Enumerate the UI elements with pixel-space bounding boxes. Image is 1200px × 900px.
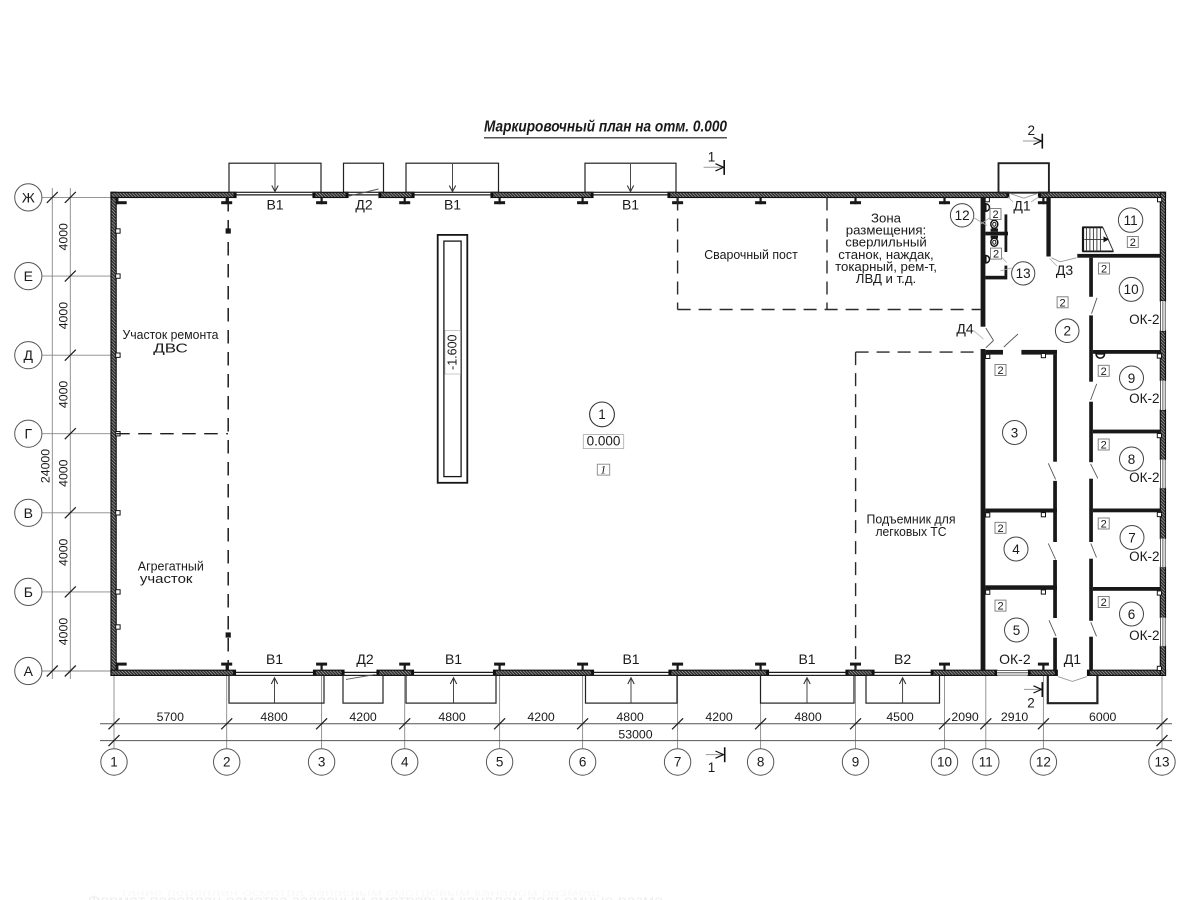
svg-text:8: 8 — [1128, 452, 1136, 467]
svg-text:В1: В1 — [798, 651, 815, 667]
svg-text:2: 2 — [1028, 123, 1036, 138]
svg-text:Ж: Ж — [22, 189, 35, 205]
svg-text:В1: В1 — [266, 197, 283, 213]
svg-text:8: 8 — [757, 754, 765, 769]
svg-text:2: 2 — [1101, 366, 1107, 378]
svg-text:4: 4 — [401, 754, 409, 769]
svg-text:ОК-2: ОК-2 — [1129, 470, 1159, 485]
svg-text:4800: 4800 — [616, 710, 644, 724]
svg-text:2090: 2090 — [951, 710, 979, 724]
svg-text:Маркировочный план на отм. 0.0: Маркировочный план на отм. 0.000 — [484, 119, 727, 136]
svg-text:9: 9 — [1128, 371, 1136, 386]
svg-text:5: 5 — [496, 754, 504, 769]
svg-text:2: 2 — [997, 601, 1003, 613]
svg-text:2910: 2910 — [1001, 710, 1029, 724]
svg-text:53000: 53000 — [618, 727, 652, 741]
svg-text:2: 2 — [1063, 324, 1071, 339]
svg-text:тание переплан осмотра запасны: тание переплан осмотра запасным смотровы… — [120, 888, 600, 899]
svg-text:2: 2 — [1101, 440, 1107, 452]
svg-text:Г: Г — [25, 426, 33, 442]
svg-text:4000: 4000 — [57, 302, 71, 330]
svg-text:6: 6 — [1128, 607, 1136, 622]
svg-text:7: 7 — [674, 754, 682, 769]
svg-text:2: 2 — [1027, 696, 1035, 711]
svg-text:3: 3 — [318, 754, 326, 769]
svg-text:ОК-2: ОК-2 — [1129, 391, 1159, 406]
svg-text:участок: участок — [140, 571, 193, 586]
svg-text:7: 7 — [1128, 530, 1136, 545]
svg-text:Е: Е — [24, 268, 33, 284]
svg-text:В1: В1 — [622, 651, 639, 667]
svg-text:4200: 4200 — [705, 710, 733, 724]
svg-text:Д2: Д2 — [356, 651, 373, 667]
svg-text:В2: В2 — [894, 651, 911, 667]
svg-text:6: 6 — [579, 754, 587, 769]
svg-text:2: 2 — [993, 249, 999, 261]
svg-text:13: 13 — [1016, 266, 1031, 281]
svg-text:4200: 4200 — [349, 710, 377, 724]
svg-text:Д1: Д1 — [1013, 198, 1030, 214]
svg-text:11: 11 — [1124, 213, 1138, 228]
svg-text:4500: 4500 — [886, 710, 914, 724]
svg-text:11: 11 — [979, 754, 993, 769]
svg-text:В1: В1 — [445, 651, 462, 667]
svg-text:1: 1 — [598, 407, 606, 422]
svg-text:4000: 4000 — [57, 381, 71, 409]
svg-text:10: 10 — [1124, 282, 1139, 297]
svg-text:легковых ТС: легковых ТС — [876, 524, 947, 539]
svg-text:В1: В1 — [622, 197, 639, 213]
svg-text:5700: 5700 — [157, 710, 185, 724]
svg-text:В1: В1 — [444, 197, 461, 213]
svg-text:1: 1 — [110, 754, 118, 769]
svg-text:2: 2 — [1130, 237, 1136, 249]
svg-text:4000: 4000 — [57, 538, 71, 566]
svg-text:ДВС: ДВС — [153, 341, 188, 356]
svg-text:10: 10 — [937, 754, 952, 769]
svg-text:5: 5 — [1013, 623, 1021, 638]
svg-text:4800: 4800 — [794, 710, 822, 724]
svg-text:2: 2 — [1101, 264, 1107, 276]
svg-text:1: 1 — [708, 150, 716, 165]
svg-text:ОК-2: ОК-2 — [1129, 312, 1159, 327]
svg-text:ОК-2: ОК-2 — [1129, 549, 1159, 564]
svg-text:4: 4 — [1012, 542, 1020, 557]
svg-text:ОК-2: ОК-2 — [1129, 628, 1159, 643]
svg-text:2: 2 — [1101, 597, 1107, 609]
svg-text:Д1: Д1 — [1064, 651, 1081, 667]
svg-text:4000: 4000 — [57, 223, 71, 251]
svg-text:Д4: Д4 — [956, 321, 973, 337]
svg-text:2: 2 — [1060, 297, 1066, 309]
svg-text:Б: Б — [24, 584, 33, 600]
svg-text:ЛВД и т.д.: ЛВД и т.д. — [856, 271, 916, 286]
svg-text:6000: 6000 — [1089, 710, 1117, 724]
svg-text:1: 1 — [708, 760, 716, 775]
svg-text:В: В — [24, 505, 33, 521]
svg-text:ОК-2: ОК-2 — [999, 651, 1031, 667]
svg-text:2: 2 — [997, 523, 1003, 535]
svg-text:В1: В1 — [266, 651, 283, 667]
svg-text:Сварочный пост: Сварочный пост — [704, 247, 798, 262]
svg-text:2: 2 — [223, 754, 231, 769]
svg-text:2: 2 — [997, 365, 1003, 377]
svg-text:А: А — [24, 663, 34, 679]
svg-text:Д2: Д2 — [355, 197, 372, 213]
svg-text:9: 9 — [852, 754, 860, 769]
svg-text:12: 12 — [955, 208, 970, 223]
svg-text:4200: 4200 — [527, 710, 555, 724]
svg-text:4000: 4000 — [57, 618, 71, 646]
svg-text:0.000: 0.000 — [587, 433, 621, 448]
svg-text:24000: 24000 — [39, 449, 53, 483]
svg-text:3: 3 — [1011, 425, 1019, 440]
svg-text:13: 13 — [1154, 754, 1169, 769]
svg-text:4800: 4800 — [438, 710, 466, 724]
svg-text:1: 1 — [600, 464, 606, 476]
svg-text:2: 2 — [1101, 519, 1107, 531]
svg-text:Д: Д — [24, 347, 34, 363]
svg-text:Д3: Д3 — [1056, 262, 1073, 278]
svg-text:-1.600: -1.600 — [446, 334, 460, 369]
svg-text:4000: 4000 — [57, 459, 71, 487]
svg-text:12: 12 — [1036, 754, 1051, 769]
svg-text:2: 2 — [992, 209, 998, 221]
svg-text:4800: 4800 — [260, 710, 288, 724]
